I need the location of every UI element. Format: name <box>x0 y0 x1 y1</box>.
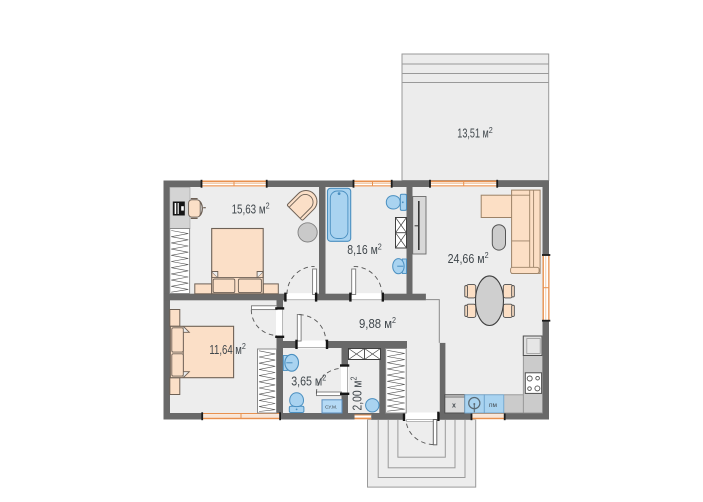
svg-text:8,16 м2: 8,16 м2 <box>347 242 382 258</box>
svg-text:13,51 м2: 13,51 м2 <box>457 125 493 141</box>
svg-text:11,64 м2: 11,64 м2 <box>209 341 246 357</box>
svg-text:2,00 м2: 2,00 м2 <box>349 376 365 410</box>
svg-text:x: x <box>452 402 456 409</box>
svg-text:24,66 м2: 24,66 м2 <box>448 250 489 266</box>
svg-text:3,65 м2: 3,65 м2 <box>291 373 326 389</box>
svg-text:15,63 м2: 15,63 м2 <box>232 201 270 217</box>
svg-text:пм: пм <box>489 402 498 409</box>
svg-text:СУ.М.: СУ.М. <box>325 405 337 411</box>
svg-text:9,88 м2: 9,88 м2 <box>359 315 396 331</box>
